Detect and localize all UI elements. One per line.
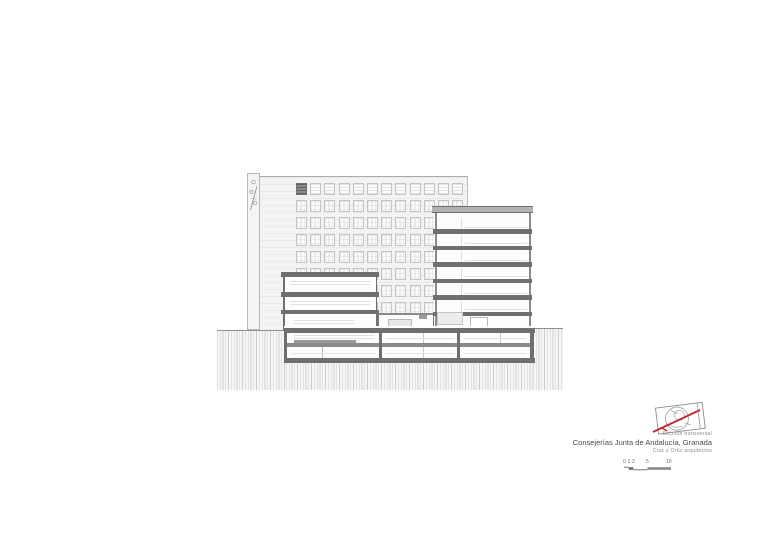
window-cell [367, 217, 378, 229]
tower-floor-slab [433, 295, 532, 300]
window-cell [353, 251, 364, 263]
tower-interior-partition [461, 268, 462, 279]
window-cell [410, 268, 421, 280]
tower-floor-slab [433, 229, 532, 234]
basement-wall [379, 333, 382, 359]
window-cell [410, 217, 421, 229]
basement-furniture-line [464, 353, 526, 354]
basement-wall [457, 333, 460, 359]
basement-dark-band [294, 340, 356, 343]
tower-interior-line [465, 276, 527, 277]
window-cell [310, 251, 321, 263]
window-cell [395, 302, 406, 314]
elevation-window-grid [0, 0, 780, 536]
architects-label: Cruz y Ortiz arquitectos [653, 448, 712, 454]
tower-interior-partition [461, 218, 462, 229]
window-cell [381, 268, 392, 280]
vent-grille [296, 183, 307, 195]
tower-floor-slab [433, 279, 532, 284]
scale-number: 10 [666, 459, 672, 465]
window-cell [381, 285, 392, 297]
window-cell [395, 217, 406, 229]
window-cell [410, 285, 421, 297]
architectural-drawing-sheet: Sección transversal Consejerías Junta de… [0, 0, 780, 536]
tower-interior-partition [461, 235, 462, 246]
ground-hatch-right [533, 328, 563, 390]
skylight-box [419, 315, 427, 320]
tower-interior-line [465, 227, 527, 228]
window-cell [353, 234, 364, 246]
window-cell [367, 251, 378, 263]
tower-interior-partition [461, 251, 462, 262]
window-cell [381, 251, 392, 263]
basement-furniture-line [386, 353, 454, 354]
basement-top-slab [284, 328, 535, 333]
window-cell [324, 183, 335, 195]
project-title: Consejerías Junta de Andalucía, Granada [573, 438, 712, 447]
window-cell [410, 234, 421, 246]
window-cell [367, 183, 378, 195]
window-cell [410, 183, 421, 195]
scale-number: 0 [623, 459, 626, 465]
basement-furniture-line [464, 338, 526, 339]
window-cell [367, 200, 378, 212]
window-cell [324, 234, 335, 246]
bench-line [294, 320, 354, 321]
basement-mid-slab [287, 343, 530, 347]
section-basement [284, 326, 535, 363]
window-cell [339, 183, 350, 195]
window-cell [395, 285, 406, 297]
window-cell [395, 234, 406, 246]
window-cell [339, 200, 350, 212]
window-cell [296, 234, 307, 246]
tower-floor-slab [433, 246, 532, 251]
wing-roof-slab [281, 272, 379, 277]
wing-interior-line [290, 284, 370, 285]
window-cell [381, 302, 392, 314]
section-low-wing [281, 272, 379, 330]
scale-number: 1 [628, 459, 631, 465]
window-cell [353, 200, 364, 212]
window-cell [324, 200, 335, 212]
window-cell [395, 251, 406, 263]
scale-number: 2 [632, 459, 635, 465]
basement-furniture-line [386, 338, 454, 339]
wing-interior-line [290, 281, 370, 282]
wing-interior-line [290, 301, 370, 302]
window-cell [296, 251, 307, 263]
window-cell [339, 251, 350, 263]
window-cell [324, 251, 335, 263]
window-cell [395, 200, 406, 212]
window-cell [410, 200, 421, 212]
window-cell [424, 183, 435, 195]
scale-bar-steps [622, 466, 676, 472]
basement-furniture-line [294, 335, 374, 336]
basement-bottom-slab [284, 358, 535, 363]
window-cell [353, 217, 364, 229]
window-cell [395, 183, 406, 195]
window-cell [339, 234, 350, 246]
window-cell [310, 234, 321, 246]
window-cell [381, 183, 392, 195]
window-cell [339, 217, 350, 229]
tower-entry-recess [437, 312, 463, 325]
window-cell [438, 183, 449, 195]
wing-interior-line [290, 304, 370, 305]
window-cell [296, 217, 307, 229]
tower-interior-partition [461, 301, 462, 312]
tower-interior-line [465, 243, 527, 244]
section-tower [432, 206, 533, 330]
window-cell [410, 251, 421, 263]
wing-floor-slab [281, 292, 379, 297]
tower-interior-line [465, 260, 527, 261]
tower-floor-slab [433, 262, 532, 267]
window-cell [381, 217, 392, 229]
window-cell [381, 200, 392, 212]
window-cell [395, 268, 406, 280]
window-cell [410, 302, 421, 314]
basement-furniture-line [292, 353, 376, 354]
window-cell [452, 183, 463, 195]
window-cell [324, 217, 335, 229]
bench-line [294, 323, 354, 324]
ground-hatch-left [217, 330, 286, 390]
scale-number: 5 [646, 459, 649, 465]
scale-bar: 0 1 2 5 10 [622, 459, 676, 473]
tower-interior-partition [461, 284, 462, 295]
basement-wall-right [530, 328, 534, 363]
window-cell [381, 234, 392, 246]
drawing-type-label: Sección transversal [663, 431, 712, 437]
ground-hatch-below [286, 362, 533, 390]
window-cell [310, 200, 321, 212]
window-cell [310, 217, 321, 229]
window-cell [367, 234, 378, 246]
window-cell [296, 200, 307, 212]
tower-interior-line [465, 293, 527, 294]
tower-interior-line [465, 309, 527, 310]
basement-furniture-line [294, 338, 374, 339]
window-cell [353, 183, 364, 195]
window-cell [310, 183, 321, 195]
